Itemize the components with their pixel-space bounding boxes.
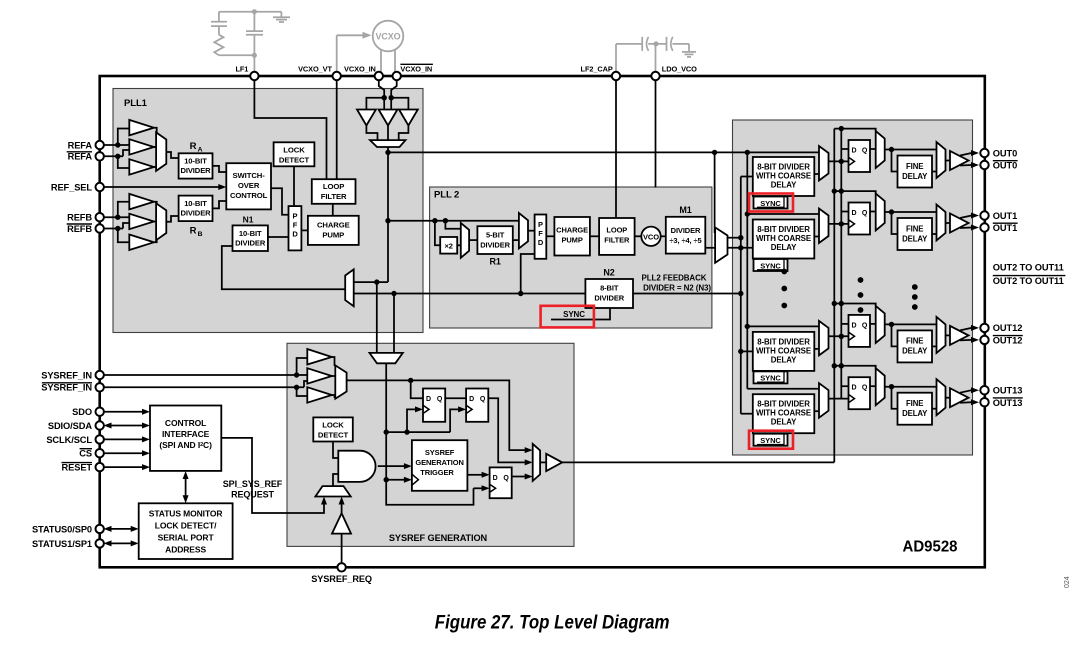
svg-text:DIVIDER = N2 (N3): DIVIDER = N2 (N3) — [643, 284, 711, 293]
svg-text:SYSREF_REQ: SYSREF_REQ — [311, 574, 372, 584]
svg-text:OUT12: OUT12 — [993, 323, 1022, 333]
svg-text:10-BIT: 10-BIT — [184, 199, 207, 208]
svg-text:OUT2 TO OUT11: OUT2 TO OUT11 — [993, 263, 1064, 273]
svg-text:SYNC: SYNC — [760, 374, 781, 383]
svg-text:CONTROL: CONTROL — [165, 418, 206, 428]
svg-text:DIVIDER: DIVIDER — [480, 240, 510, 249]
svg-text:SYSREF_IN: SYSREF_IN — [41, 383, 92, 393]
svg-text:SYSREF GENERATION: SYSREF GENERATION — [389, 533, 488, 543]
svg-text:DIVIDER: DIVIDER — [180, 209, 211, 218]
svg-text:×2: ×2 — [445, 241, 453, 250]
svg-text:OUT1: OUT1 — [993, 223, 1017, 233]
svg-text:Q: Q — [862, 148, 868, 155]
svg-text:WITH COARSE: WITH COARSE — [756, 346, 811, 355]
svg-text:B: B — [198, 231, 203, 238]
svg-text:SYSREF: SYSREF — [425, 448, 455, 457]
svg-text:Q: Q — [862, 385, 868, 392]
svg-text:F: F — [538, 229, 543, 238]
svg-text:P: P — [538, 220, 543, 229]
svg-text:PUMP: PUMP — [561, 236, 582, 245]
svg-text:D: D — [493, 475, 498, 482]
svg-text:D: D — [852, 210, 857, 217]
svg-text:WITH COARSE: WITH COARSE — [756, 409, 811, 418]
svg-text:STATUS1/SP1: STATUS1/SP1 — [32, 539, 92, 549]
svg-text:DELAY: DELAY — [771, 243, 797, 252]
svg-text:REF_SEL: REF_SEL — [51, 182, 93, 192]
svg-text:REFA: REFA — [68, 140, 93, 150]
svg-text:LOCK: LOCK — [322, 421, 344, 430]
svg-text:SYNC: SYNC — [760, 436, 781, 445]
svg-text:(SPI AND I2C): (SPI AND I2C) — [159, 440, 212, 450]
svg-text:SCLK/SCL: SCLK/SCL — [46, 435, 92, 445]
svg-text:DELAY: DELAY — [902, 234, 928, 243]
svg-text:5-BIT: 5-BIT — [486, 230, 505, 239]
svg-text:8-BIT DIVIDER: 8-BIT DIVIDER — [757, 225, 810, 234]
svg-text:8-BIT DIVIDER: 8-BIT DIVIDER — [757, 400, 810, 409]
svg-text:OVER: OVER — [238, 181, 260, 190]
svg-text:Figure 27. Top Level Diagram: Figure 27. Top Level Diagram — [435, 612, 670, 634]
svg-text:DIVIDER: DIVIDER — [235, 239, 266, 248]
svg-text:WITH COARSE: WITH COARSE — [756, 234, 811, 243]
svg-text:VCXO_IN: VCXO_IN — [400, 65, 432, 74]
svg-text:GENERATION: GENERATION — [415, 458, 463, 467]
svg-text:D: D — [852, 148, 857, 155]
svg-text:SDO: SDO — [72, 407, 92, 417]
svg-text:OUT1: OUT1 — [993, 211, 1017, 221]
svg-text:DETECT: DETECT — [279, 155, 310, 164]
svg-text:FILTER: FILTER — [321, 192, 347, 201]
svg-text:OUT0: OUT0 — [993, 148, 1017, 158]
svg-text:FINE: FINE — [906, 224, 923, 233]
svg-text:LOOP: LOOP — [323, 182, 344, 191]
svg-text:8-BIT: 8-BIT — [600, 284, 619, 293]
svg-text:VCXO: VCXO — [375, 32, 400, 42]
svg-text:LOOP: LOOP — [606, 226, 627, 235]
svg-text:SPI_SYS_REF: SPI_SYS_REF — [223, 479, 283, 489]
svg-text:DIVIDER: DIVIDER — [671, 226, 701, 235]
svg-text:R: R — [190, 226, 197, 237]
svg-text:FILTER: FILTER — [604, 236, 630, 245]
svg-text:SERIAL PORT: SERIAL PORT — [158, 533, 215, 543]
svg-text:Q: Q — [503, 475, 509, 482]
svg-text:÷3, ÷4, ÷5: ÷3, ÷4, ÷5 — [669, 236, 701, 245]
svg-text:8-BIT DIVIDER: 8-BIT DIVIDER — [757, 163, 810, 172]
svg-text:A: A — [198, 147, 203, 154]
svg-text:PLL1: PLL1 — [124, 98, 148, 109]
svg-text:P: P — [293, 212, 298, 221]
svg-text:PUMP: PUMP — [322, 231, 344, 240]
svg-text:Q: Q — [437, 396, 443, 403]
svg-text:DELAY: DELAY — [902, 409, 928, 418]
svg-text:SYNC: SYNC — [760, 261, 781, 270]
svg-text:10-BIT: 10-BIT — [184, 157, 207, 166]
svg-text:REQUEST: REQUEST — [231, 490, 274, 500]
svg-text:F: F — [293, 221, 298, 230]
svg-text:SDIO/SDA: SDIO/SDA — [48, 421, 93, 431]
svg-text:VCO: VCO — [643, 232, 659, 241]
svg-text:PLL2 FEEDBACK: PLL2 FEEDBACK — [642, 274, 707, 283]
svg-text:CHARGE: CHARGE — [317, 221, 350, 230]
svg-text:R: R — [190, 141, 197, 152]
svg-text:OUT12: OUT12 — [993, 336, 1022, 346]
svg-text:8-BIT DIVIDER: 8-BIT DIVIDER — [757, 337, 810, 346]
svg-text:N2: N2 — [603, 268, 614, 278]
svg-text:DELAY: DELAY — [902, 172, 928, 181]
svg-text:OUT13: OUT13 — [993, 398, 1022, 408]
svg-text:ADDRESS: ADDRESS — [165, 545, 206, 555]
svg-text:REFB: REFB — [67, 224, 92, 234]
svg-text:SYSREF_IN: SYSREF_IN — [41, 370, 92, 380]
svg-text:FINE: FINE — [906, 399, 923, 408]
svg-text:INTERFACE: INTERFACE — [162, 429, 210, 439]
svg-text:DIVIDER: DIVIDER — [594, 294, 624, 303]
svg-text:DETECT: DETECT — [318, 431, 349, 440]
svg-text:OUT0: OUT0 — [993, 161, 1017, 171]
svg-text:VCXO_VT: VCXO_VT — [298, 65, 332, 74]
svg-text:D: D — [538, 238, 544, 247]
svg-text:Q: Q — [480, 396, 486, 403]
svg-text:Q: Q — [862, 210, 868, 217]
svg-text:VCXO_IN: VCXO_IN — [344, 65, 376, 74]
svg-text:LF1: LF1 — [235, 65, 248, 74]
svg-text:LDO_VCO: LDO_VCO — [662, 64, 697, 73]
svg-text:PLL 2: PLL 2 — [434, 190, 459, 201]
svg-text:R1: R1 — [489, 257, 500, 267]
svg-text:024: 024 — [1064, 576, 1071, 588]
svg-text:D: D — [292, 230, 298, 239]
svg-text:WITH COARSE: WITH COARSE — [756, 172, 811, 181]
svg-text:REFA: REFA — [68, 152, 93, 162]
svg-text:LOCK DETECT/: LOCK DETECT/ — [155, 521, 217, 531]
svg-text:LF2_CAP: LF2_CAP — [581, 64, 613, 73]
svg-text:RESET: RESET — [62, 463, 93, 473]
svg-text:OUT13: OUT13 — [993, 386, 1022, 396]
svg-text:FINE: FINE — [906, 162, 923, 171]
svg-text:DELAY: DELAY — [902, 347, 928, 356]
svg-text:DELAY: DELAY — [771, 418, 797, 427]
svg-text:D: D — [852, 385, 857, 392]
svg-text:STATUS0/SP0: STATUS0/SP0 — [32, 524, 92, 534]
svg-text:DIVIDER: DIVIDER — [180, 166, 211, 175]
svg-text:N1: N1 — [243, 215, 254, 225]
svg-text:LOCK: LOCK — [283, 145, 305, 154]
svg-text:SWITCH-: SWITCH- — [233, 171, 266, 180]
svg-text:10-BIT: 10-BIT — [239, 229, 262, 238]
svg-text:DELAY: DELAY — [771, 181, 797, 190]
svg-text:STATUS MONITOR: STATUS MONITOR — [149, 509, 223, 519]
svg-text:DELAY: DELAY — [771, 355, 797, 364]
svg-text:CS: CS — [79, 449, 92, 459]
svg-text:TRIGGER: TRIGGER — [420, 468, 454, 477]
svg-text:D: D — [852, 322, 857, 329]
svg-text:Q: Q — [862, 322, 868, 329]
svg-text:FINE: FINE — [906, 337, 923, 346]
svg-text:OUT2 TO OUT11: OUT2 TO OUT11 — [993, 276, 1064, 286]
svg-text:M1: M1 — [679, 205, 691, 215]
svg-text:SYNC: SYNC — [760, 199, 781, 208]
svg-text:AD9528: AD9528 — [903, 539, 958, 556]
svg-text:D: D — [469, 396, 474, 403]
svg-text:REFB: REFB — [67, 213, 92, 223]
svg-text:CONTROL: CONTROL — [230, 191, 268, 200]
svg-text:SYNC: SYNC — [563, 310, 585, 319]
svg-text:D: D — [426, 396, 431, 403]
svg-text:CHARGE: CHARGE — [556, 226, 588, 235]
